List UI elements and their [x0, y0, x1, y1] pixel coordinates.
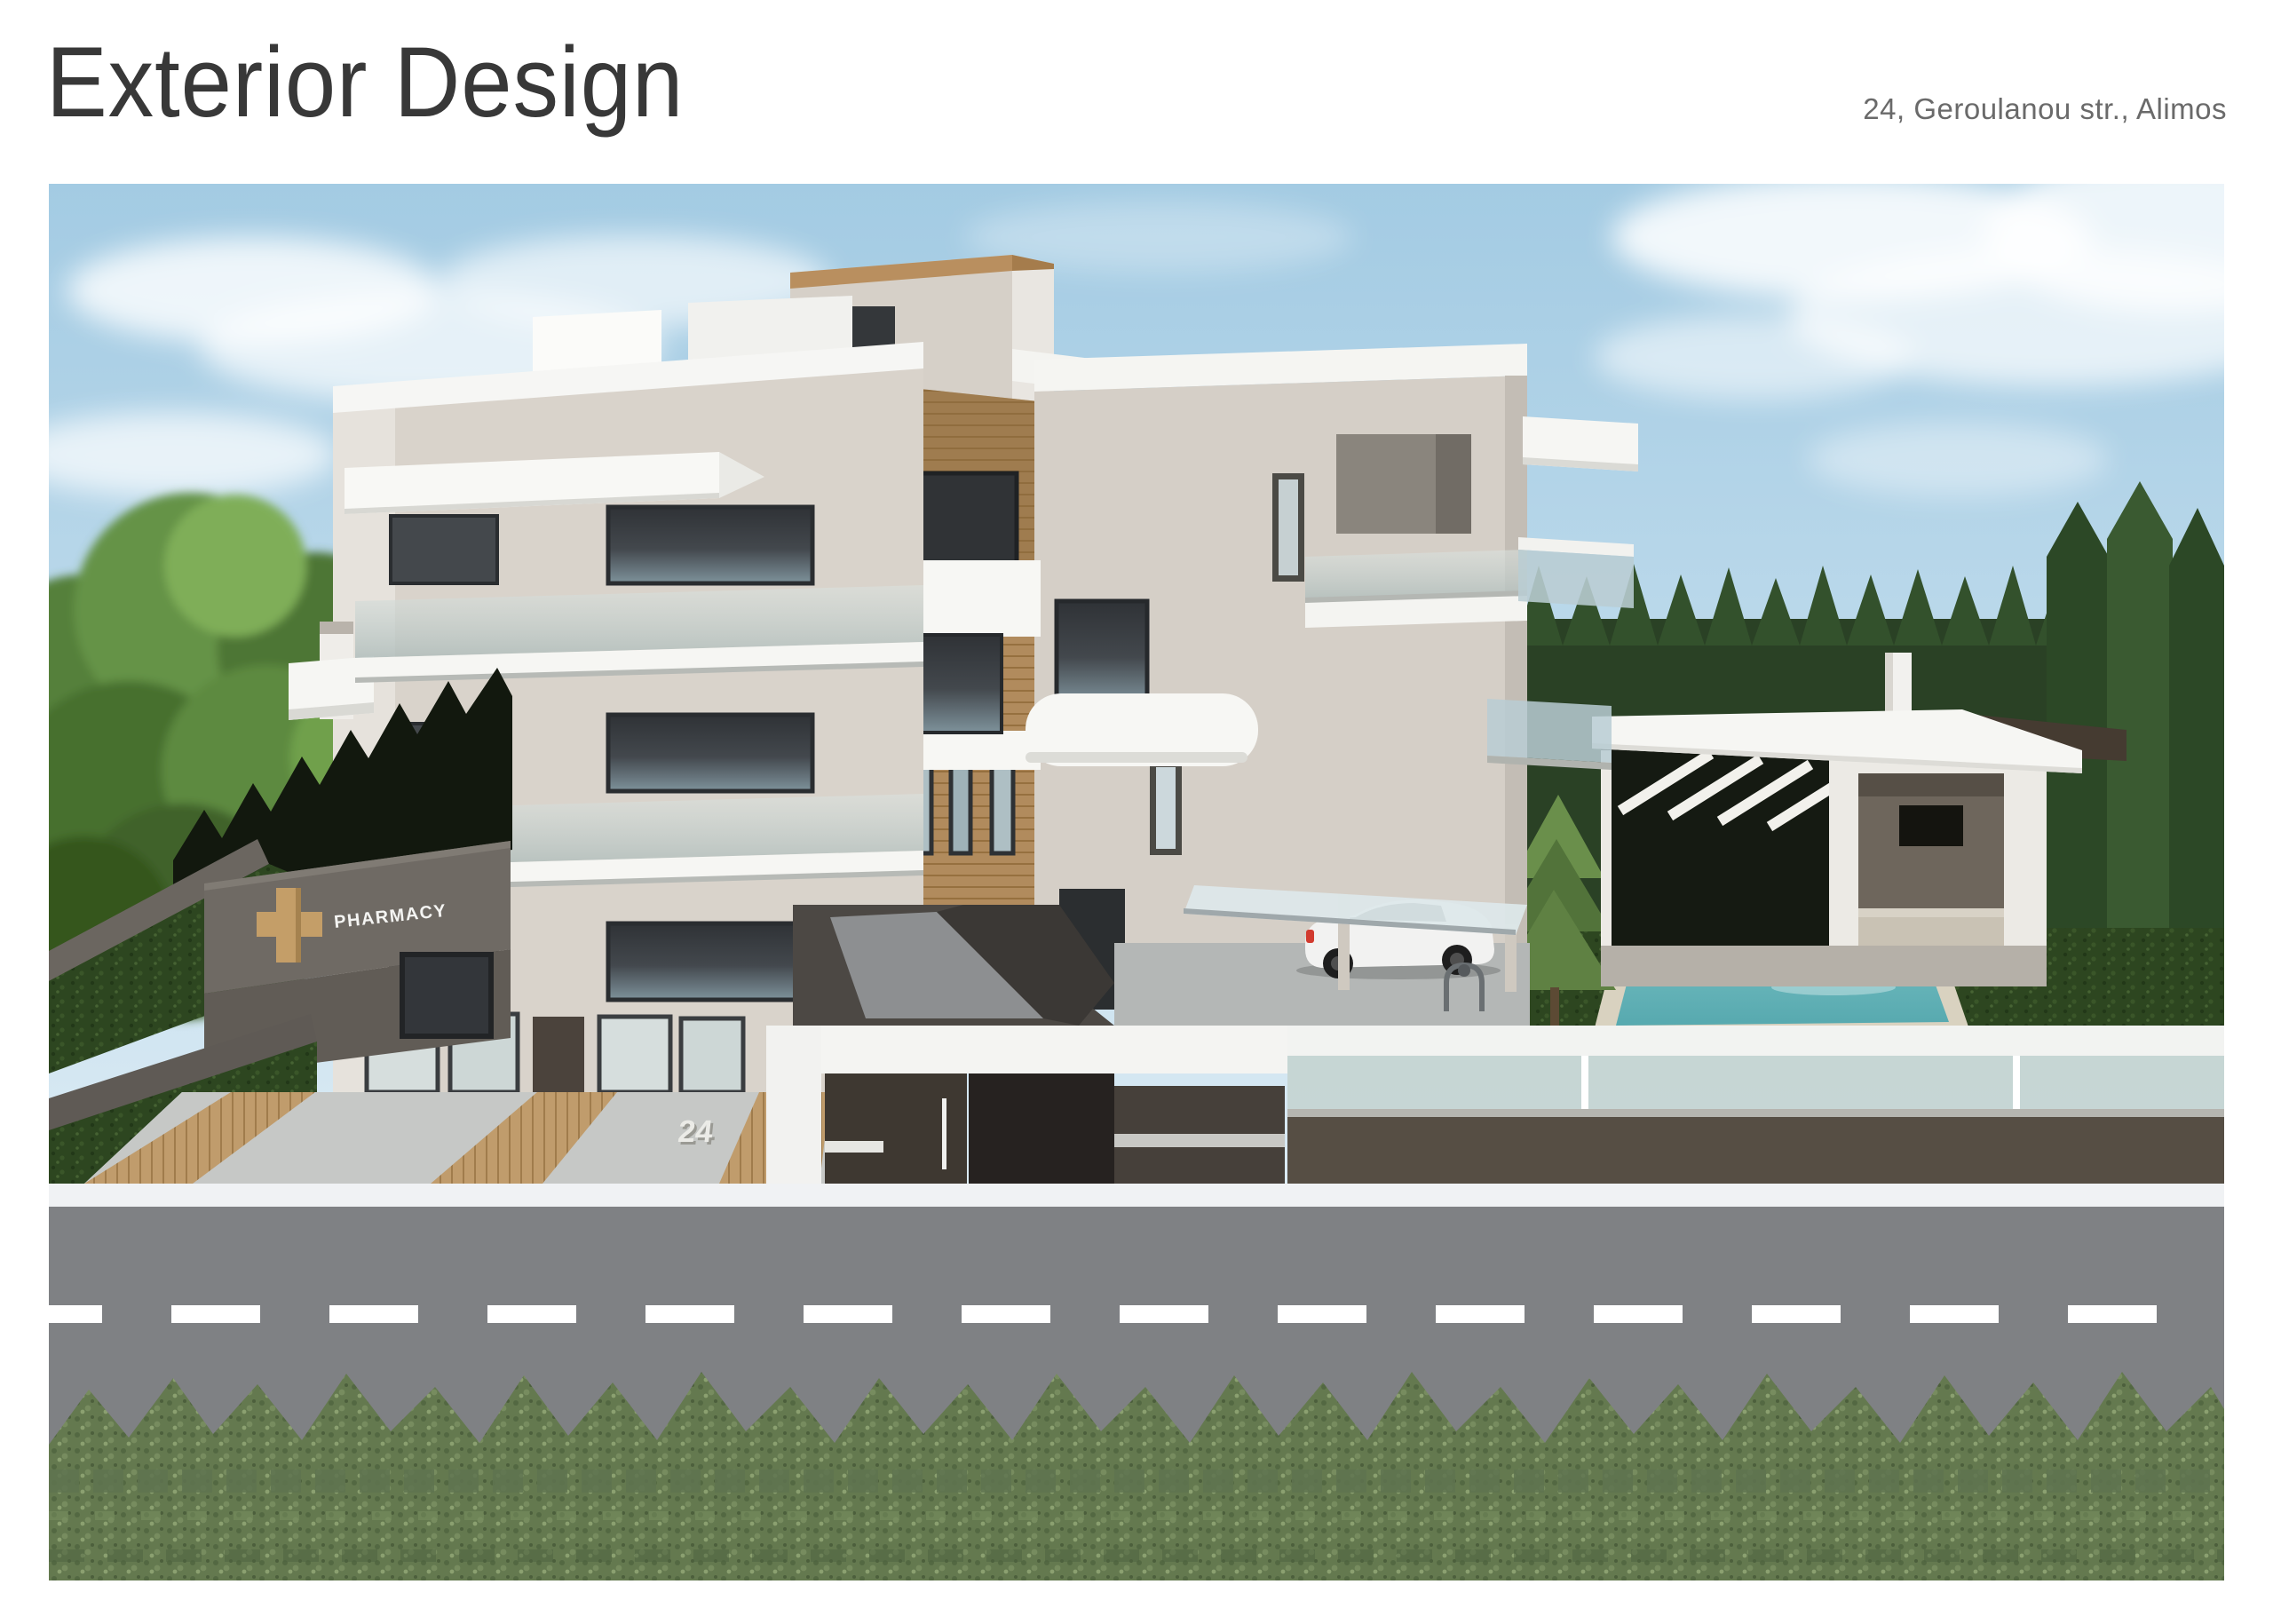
- sidewalk: [49, 1184, 2224, 1207]
- fence-steel-strip: [1287, 1109, 2224, 1117]
- ramp-opening: [969, 1073, 1114, 1184]
- entrance-door: [533, 1017, 584, 1092]
- street-fence: 24 24: [677, 1026, 2224, 1184]
- car-taillight: [1306, 930, 1314, 943]
- house-number: 24: [677, 1114, 715, 1149]
- window: [608, 923, 812, 1000]
- window: [608, 507, 812, 583]
- right-balcony: [1305, 550, 1527, 628]
- exterior-render-image: PHARMACY: [49, 184, 2224, 1580]
- fence-glass: [1287, 1056, 2224, 1109]
- garage-ramp: [793, 905, 1114, 1026]
- page-title: Exterior Design: [46, 25, 684, 139]
- balcony-level-2: [355, 585, 923, 683]
- window: [391, 516, 497, 583]
- window: [608, 715, 812, 791]
- gate-top-beam: [766, 1026, 1287, 1073]
- gate-handle: [942, 1098, 946, 1169]
- side-balcony-glass: [1518, 537, 1634, 608]
- project-address: 24, Geroulanou str., Alimos: [1863, 92, 2227, 126]
- slim-window-light: [1150, 761, 1182, 855]
- pool-house-floor: [1601, 946, 2047, 986]
- fence-wall: [1287, 1117, 2224, 1184]
- outdoor-tv: [1899, 805, 1963, 846]
- right-big-window: [1057, 601, 1147, 703]
- side-balcony-upper: [1523, 416, 1638, 471]
- slim-window: [1272, 473, 1304, 582]
- presentation-slide: Exterior Design 24, Geroulanou str., Ali…: [0, 0, 2273, 1624]
- front-yard: [84, 1092, 830, 1184]
- pharmacy-window: [402, 955, 491, 1036]
- fence-cap: [1283, 1026, 2224, 1056]
- entrance-gate-area: 24 24: [677, 1026, 1287, 1184]
- render-scene: PHARMACY: [49, 184, 2224, 1580]
- gate-pillar: [766, 1026, 821, 1184]
- side-balcony-lower: [1487, 699, 1612, 770]
